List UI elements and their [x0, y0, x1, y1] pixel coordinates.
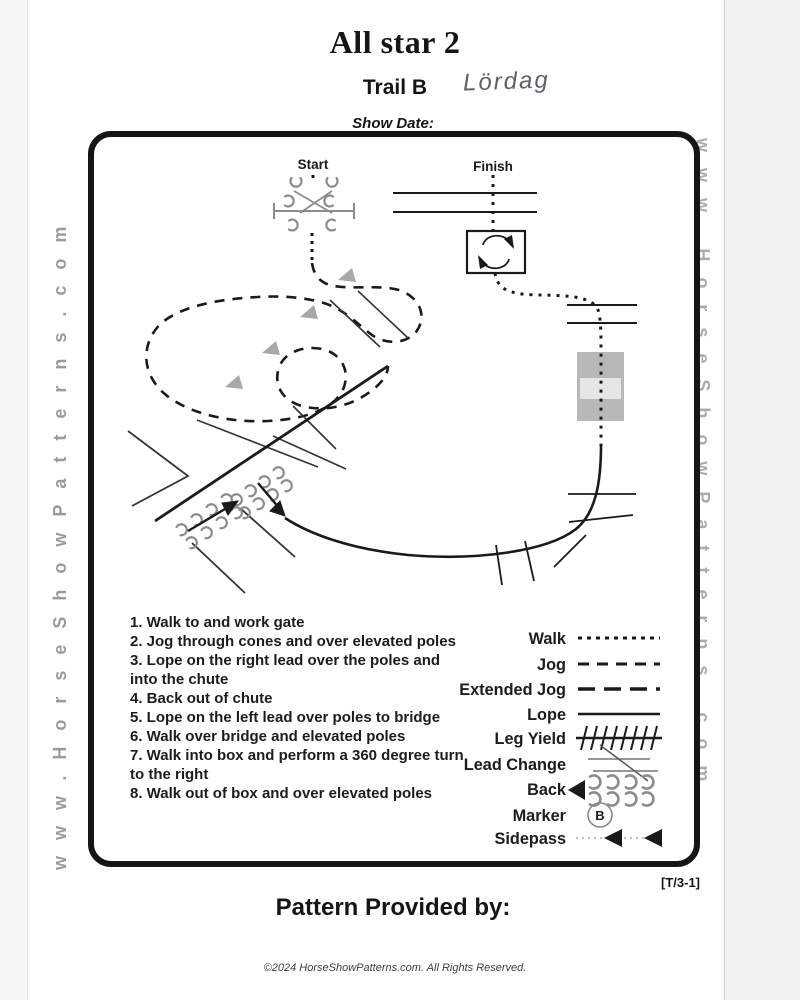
pattern-code: [T/3-1] — [560, 875, 700, 890]
jog-path-loops — [146, 263, 421, 421]
instruction-item: 2. Jog through cones and over elevated p… — [130, 632, 470, 651]
finish-label: Finish — [473, 159, 513, 174]
sidepass-icon — [576, 829, 662, 847]
legend-label-back: Back — [527, 781, 567, 799]
elevated-poles — [197, 291, 408, 469]
marker-letter: B — [595, 808, 604, 823]
back-icon — [568, 775, 653, 805]
legend-label-lead-change: Lead Change — [464, 756, 566, 774]
instruction-item: 1. Walk to and work gate — [130, 613, 470, 632]
copyright-line: ©2024 HorseShowPatterns.com. All Rights … — [0, 962, 790, 974]
cone-icon — [338, 268, 356, 282]
instruction-item: 3. Lope on the right lead over the poles… — [130, 651, 470, 689]
watermark-left: www.HorseShowPatterns.com — [50, 128, 71, 870]
cone-icon — [300, 305, 318, 319]
legend: Walk Jog Extended Jog Lope Leg Yield Lea… — [459, 630, 567, 848]
legend-symbols: B — [568, 638, 662, 847]
cone-icon — [225, 375, 243, 389]
page-left-margin — [0, 0, 28, 1000]
pattern-provided-label: Pattern Provided by: — [0, 894, 786, 922]
marker-icon: B — [588, 803, 612, 827]
bridge-approach-poles — [567, 305, 637, 323]
leg-yield-icon — [576, 726, 662, 750]
instruction-item: 8. Walk out of box and over elevated pol… — [130, 784, 470, 803]
legend-label-extended-jog: Extended Jog — [459, 681, 566, 699]
legend-label-sidepass: Sidepass — [495, 830, 567, 848]
back-arrow-icon — [568, 780, 585, 800]
cone-icon — [262, 341, 280, 355]
instruction-item: 5. Lope on the left lead over poles to b… — [130, 708, 470, 727]
instruction-item: 4. Back out of chute — [130, 689, 470, 708]
legend-label-leg-yield: Leg Yield — [495, 730, 566, 748]
instruction-item: 6. Walk over bridge and elevated poles — [130, 727, 470, 746]
legend-label-walk: Walk — [529, 630, 567, 648]
legend-label-marker: Marker — [513, 807, 567, 825]
gate-obstacle — [274, 178, 354, 231]
instruction-item: 7. Walk into box and perform a 360 degre… — [130, 746, 470, 784]
legend-label-jog: Jog — [537, 656, 566, 674]
turn-box-obstacle — [467, 231, 525, 273]
handwritten-note: Lördag — [463, 66, 551, 97]
page-title: All star 2 — [0, 24, 790, 61]
walk-path-start — [312, 175, 313, 263]
trail-subtitle: Trail B — [0, 76, 790, 100]
scanned-pattern-sheet: All star 2 Trail B Lördag Show Date: www… — [0, 0, 800, 1000]
legend-label-lope: Lope — [527, 706, 566, 724]
show-date-label: Show Date: — [0, 115, 786, 132]
page-right-margin — [724, 0, 800, 1000]
lope-poles — [496, 494, 636, 585]
instructions-list: 1. Walk to and work gate 2. Jog through … — [130, 613, 470, 803]
start-label: Start — [298, 157, 329, 172]
chute-obstacle — [128, 431, 295, 593]
finish-poles — [393, 193, 537, 212]
